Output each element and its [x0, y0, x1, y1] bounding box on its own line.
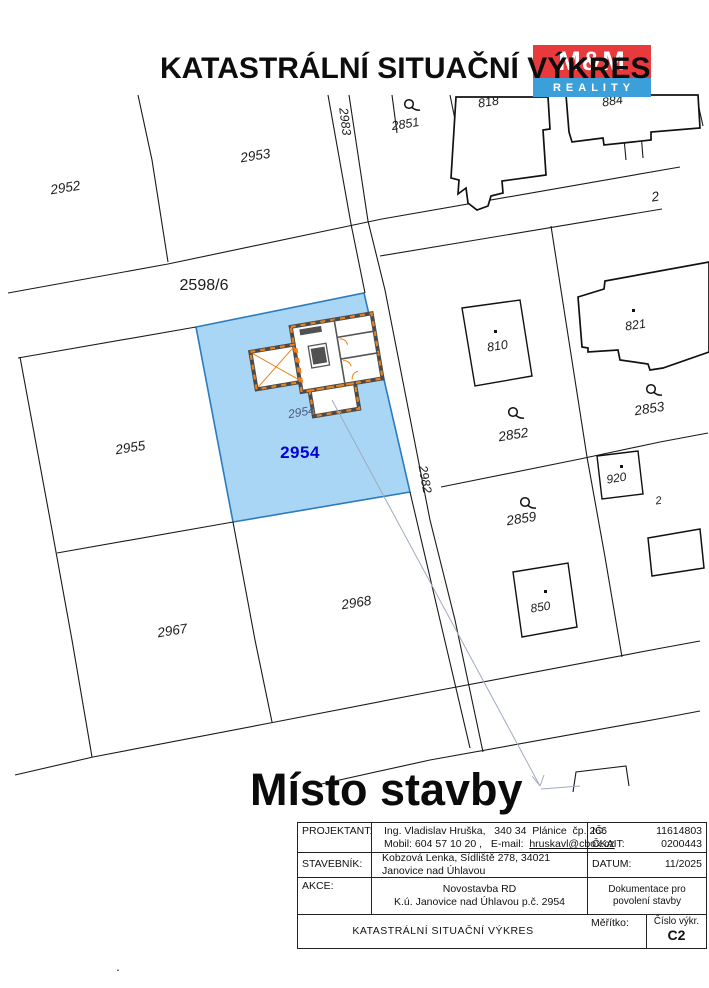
building-edge — [648, 529, 704, 576]
parcel-label-2953: 2953 — [238, 146, 271, 166]
stavebnik-info: Kobzová Lenka, Sídliště 278, 34021 Janov… — [372, 853, 588, 878]
projektant-line2: Mobil: 604 57 10 20 , E-mail: — [384, 838, 529, 850]
building-884 — [566, 95, 700, 145]
ic-ckait-cell: IČ:11614803 ČKAIT:0200443 — [588, 823, 706, 853]
landuse-symbol-2852 — [509, 408, 524, 418]
parcel-label-2851: 2851 — [390, 115, 421, 133]
meritko-label: Měřítko: — [588, 915, 647, 948]
datum-cell: DATUM:11/2025 — [588, 853, 706, 878]
datum-value: 11/2025 — [665, 858, 702, 871]
projektant-line1: Ing. Vladislav Hruška, 340 34 Plánice čp… — [384, 825, 583, 838]
parcel-label-2967: 2967 — [155, 621, 188, 641]
parcel-label-2859: 2859 — [504, 509, 537, 529]
stray-mark: . — [116, 958, 120, 974]
scale-number-cell: Měřítko: Číslo výkr. C2 — [588, 915, 706, 948]
datum-label: DATUM: — [592, 858, 631, 871]
title-block: PROJEKTANT: Ing. Vladislav Hruška, 340 3… — [297, 822, 707, 949]
parcel-label-edge-mid: 2 — [654, 495, 663, 508]
parcel-label-2955: 2955 — [113, 438, 146, 458]
parcel-label-edge-top: 2 — [649, 188, 660, 204]
building-outlines — [451, 95, 709, 637]
landuse-symbol-2851 — [405, 100, 420, 110]
parcel-label-2952: 2952 — [48, 178, 81, 198]
cadastral-drawing-page: M&M REALITY KATASTRÁLNÍ SITUAČNÍ VÝKRES — [0, 0, 709, 988]
stavebnik-label: STAVEBNÍK: — [298, 853, 372, 878]
projektant-label: PROJEKTANT: — [298, 823, 372, 853]
parcel-label-2968: 2968 — [339, 593, 372, 613]
akce-label: AKCE: — [298, 878, 372, 915]
akce-info: Novostavba RD K.ú. Janovice nad Úhlavou … — [372, 878, 588, 915]
ckait-value: 0200443 — [661, 838, 702, 851]
parcel-label-2983: 2983 — [336, 106, 353, 136]
dokumentace-cell: Dokumentace pro povolení stavby — [588, 878, 706, 915]
parcel-label-2982: 2982 — [415, 463, 434, 494]
building-818 — [451, 97, 550, 210]
drawing-title-cell: KATASTRÁLNÍ SITUAČNÍ VÝKRES — [298, 915, 588, 948]
parcel-label-2954-highlight: 2954 — [280, 443, 320, 462]
parcel-label-2852: 2852 — [496, 425, 529, 445]
page-title: KATASTRÁLNÍ SITUAČNÍ VÝKRES — [160, 52, 651, 86]
ckait-label: ČKAIT: — [592, 838, 625, 851]
ic-label: IČ: — [592, 825, 605, 838]
parcel-label-2598-6: 2598/6 — [180, 277, 229, 294]
ic-value: 11614803 — [656, 825, 702, 838]
parcel-label-2853: 2853 — [632, 399, 665, 419]
landuse-symbol-2853 — [647, 385, 662, 395]
site-of-construction-label: Místo stavby — [250, 764, 523, 816]
projektant-info: Ing. Vladislav Hruška, 340 34 Plánice čp… — [372, 823, 588, 853]
akce-line2: K.ú. Janovice nad Úhlavou p.č. 2954 — [376, 896, 583, 909]
akce-line1: Novostavba RD — [376, 883, 583, 896]
landuse-symbol-2859 — [521, 498, 536, 508]
cislo-vykr-value: C2 — [647, 928, 706, 943]
dok-line2: povolení stavby — [592, 896, 702, 908]
dok-line1: Dokumentace pro — [592, 884, 702, 896]
